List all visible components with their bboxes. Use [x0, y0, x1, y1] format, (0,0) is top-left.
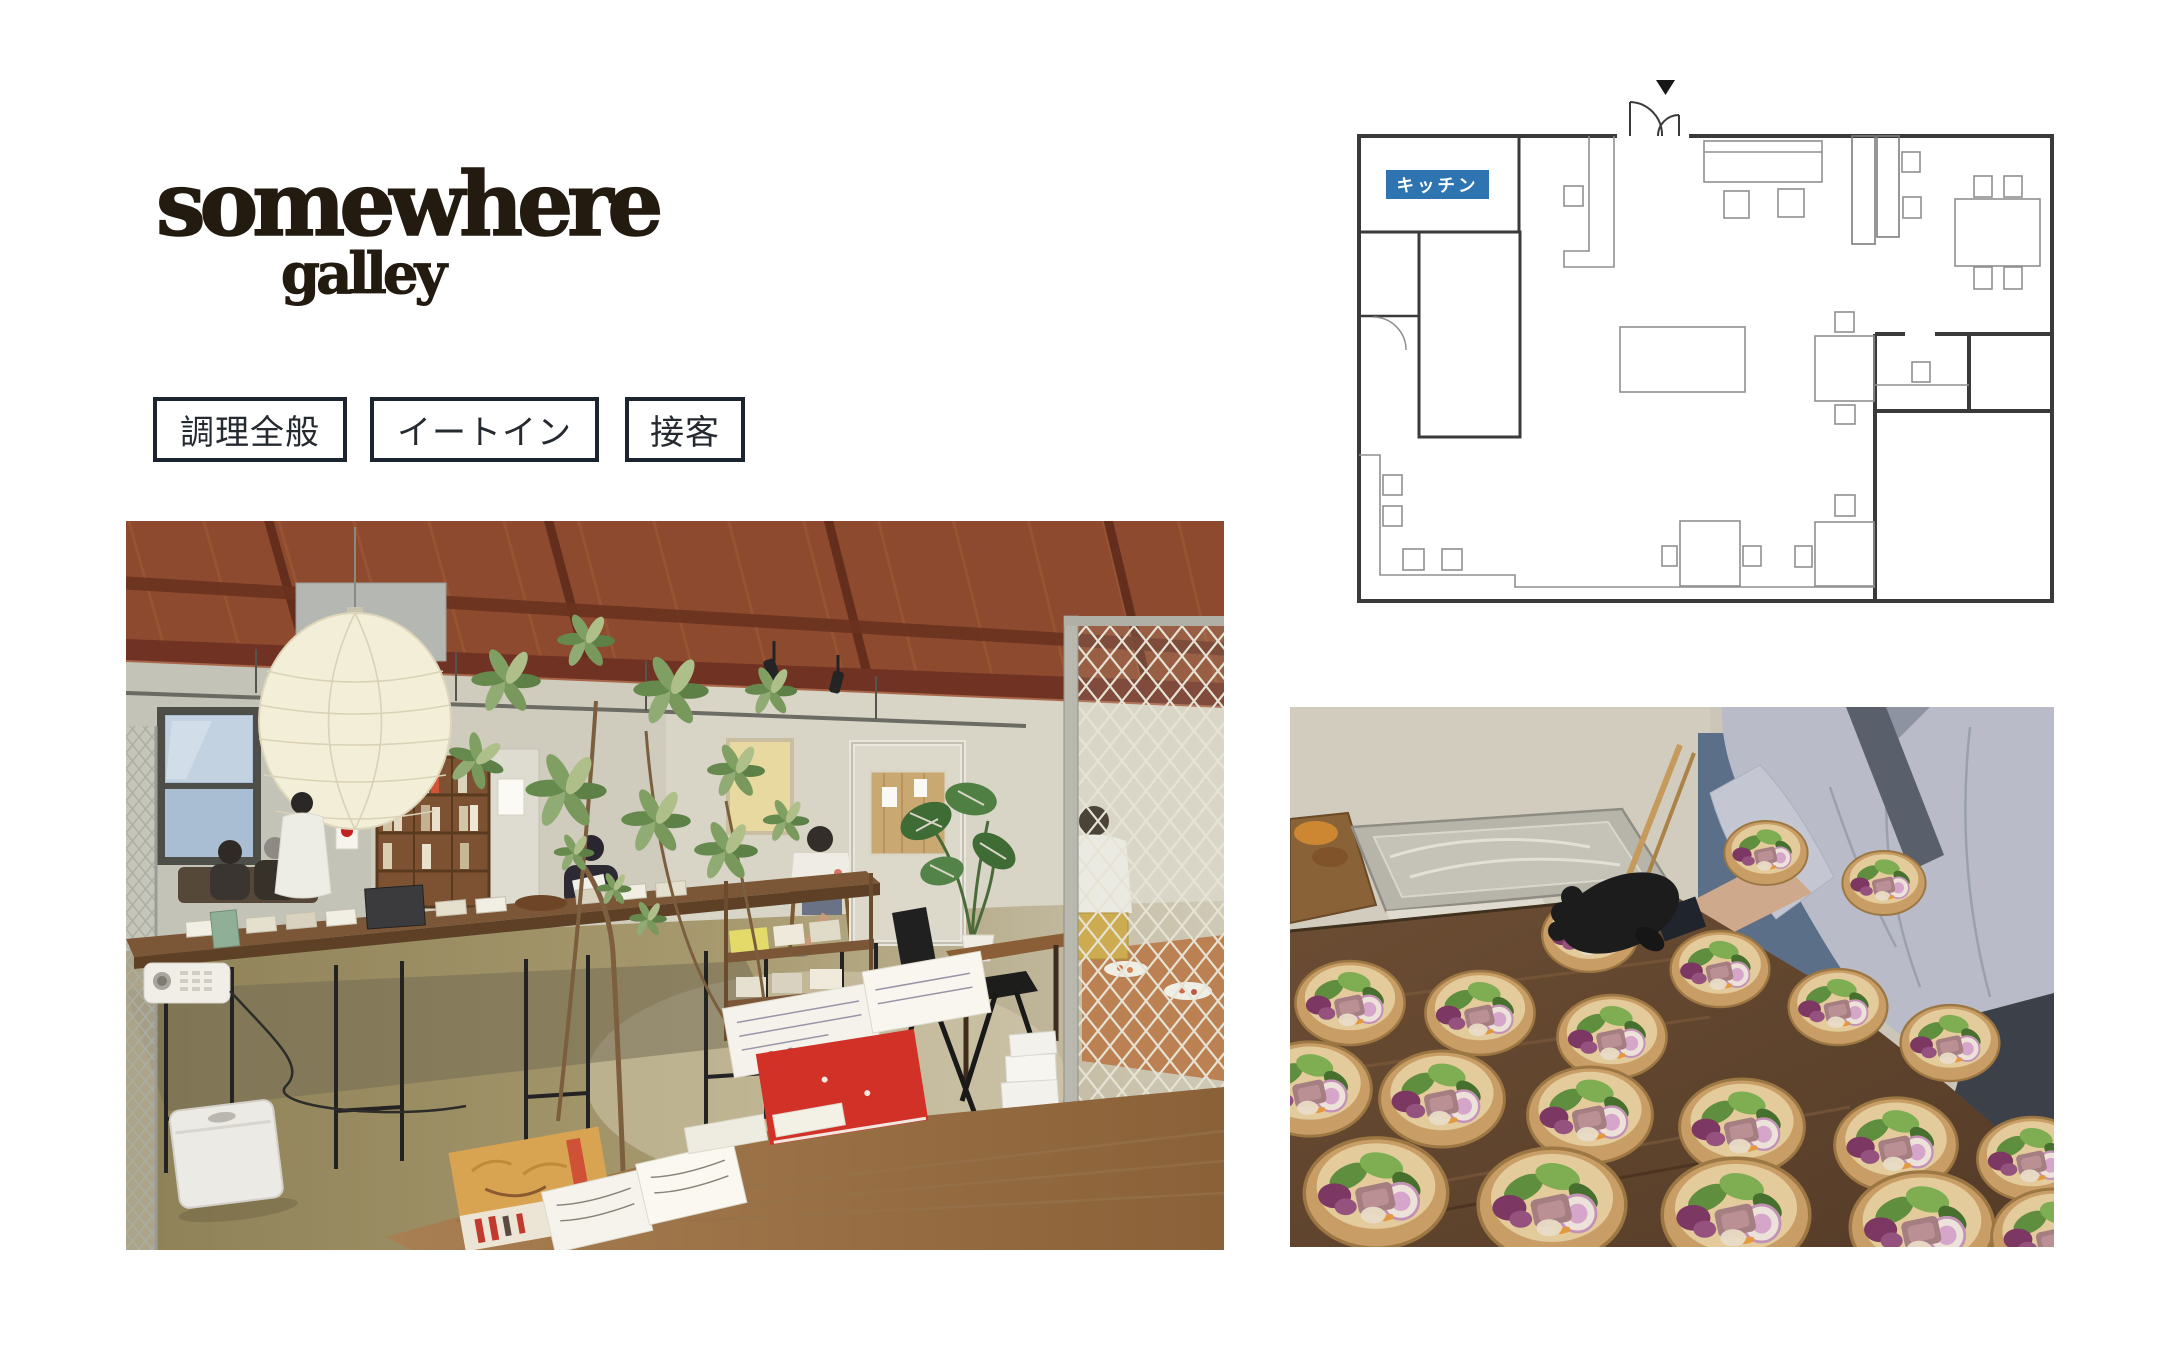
- gallery-cafe-interior-photo: [126, 521, 1224, 1250]
- kitchen-label: キッチン: [1386, 170, 1489, 199]
- door-swing-arc: [1373, 317, 1406, 350]
- laptop: [365, 885, 426, 929]
- tag-cooking: 調理全般: [153, 397, 347, 462]
- window: [161, 711, 257, 861]
- salad-bowls-preparation-photo: [1290, 707, 2054, 1247]
- tag-service-label: 接客: [650, 405, 720, 454]
- tag-eat-in: イートイン: [370, 397, 599, 462]
- logo-galley: galley: [252, 246, 472, 302]
- wood-bowl: [515, 895, 567, 911]
- paper-stacks: [1001, 1031, 1059, 1111]
- green-card: [210, 910, 240, 949]
- tag-cooking-label: 調理全般: [180, 405, 320, 454]
- tag-service: 接客: [625, 397, 745, 462]
- logo-somewhere: somewhere: [156, 160, 657, 248]
- slide-page: somewhere galley 調理全般 イートイン 接客: [0, 0, 2180, 1370]
- entrance-doors: [1630, 102, 1679, 136]
- kitchen-label-text: キッチン: [1397, 176, 1479, 196]
- projector: [144, 963, 230, 1003]
- tag-eat-in-label: イートイン: [397, 405, 572, 454]
- entrance-arrow-icon: [1656, 80, 1675, 95]
- plan-walls: [1359, 136, 2052, 601]
- floor-plan-diagram: キッチン: [1350, 70, 2060, 610]
- white-panel: [483, 749, 539, 907]
- plan-furniture: [1359, 136, 2040, 587]
